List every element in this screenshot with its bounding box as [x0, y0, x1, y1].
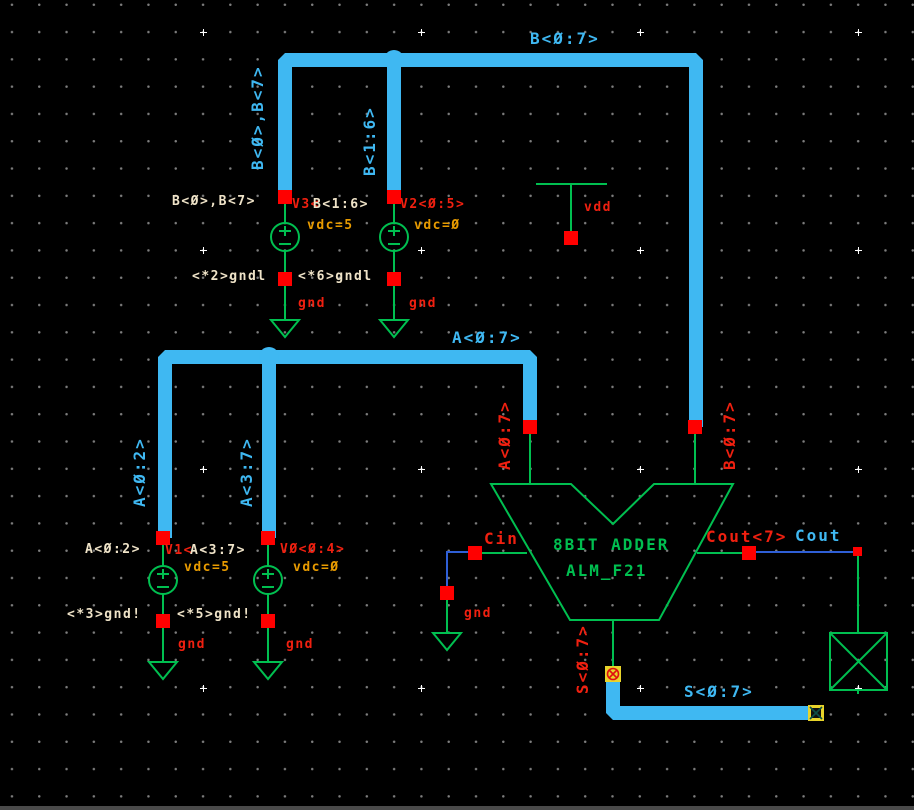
- vsource-v2[interactable]: [380, 223, 408, 251]
- v0-gnd-ref-label[interactable]: <*5>gnd!: [177, 608, 252, 621]
- bus-b-junction[interactable]: [384, 50, 404, 70]
- pin-v2-minus[interactable]: [387, 272, 401, 286]
- net-label-b-mid-rot[interactable]: B<1:6>: [362, 106, 378, 176]
- bus-a-junction[interactable]: [259, 347, 279, 367]
- net-label-b-left-rot[interactable]: B<Ø>,B<7>: [250, 65, 266, 170]
- pin-v2-plus[interactable]: [387, 190, 401, 204]
- adder-pin-b-label[interactable]: B<Ø:7>: [722, 400, 738, 470]
- gnd-label-v0: gnd: [286, 638, 314, 651]
- adder-pin-cin-label[interactable]: Cin: [484, 531, 519, 547]
- gnd-label-v3: gnd: [298, 297, 326, 310]
- v1-value-label[interactable]: vdc=5: [184, 561, 231, 574]
- net-label-s-bus[interactable]: S<Ø:7>: [684, 684, 754, 700]
- v2-net-label[interactable]: B<1:6>: [313, 198, 369, 211]
- v1-net-label[interactable]: A<Ø:2>: [85, 543, 141, 556]
- net-label-cout[interactable]: Cout: [795, 528, 842, 544]
- net-label-a-left-rot[interactable]: A<Ø:2>: [132, 437, 148, 507]
- pin-cin-gnd[interactable]: [440, 586, 454, 600]
- v0-net-label[interactable]: A<3:7>: [190, 544, 246, 557]
- gnd-label-cin: gnd: [464, 607, 492, 620]
- pin-vdd[interactable]: [564, 231, 578, 245]
- pin-v1-minus[interactable]: [156, 614, 170, 628]
- net-label-a-bus[interactable]: A<Ø:7>: [452, 330, 522, 346]
- vsource-v0[interactable]: [254, 566, 282, 594]
- v0-name-label[interactable]: VØ<Ø:4>: [280, 543, 345, 556]
- noconn-box-symbol[interactable]: [830, 633, 887, 690]
- gnd-label-v2: gnd: [409, 297, 437, 310]
- s-bus-end-marker[interactable]: [808, 705, 824, 721]
- pin-bus-a-stub[interactable]: [523, 420, 537, 434]
- v1-name-label[interactable]: V1<: [165, 544, 193, 557]
- v2-name-label[interactable]: V2<Ø:5>: [400, 198, 465, 211]
- v2-gnd-ref-label[interactable]: <*6>gndl: [298, 270, 373, 283]
- gnd-label-v1: gnd: [178, 638, 206, 651]
- v0-value-label[interactable]: vdc=Ø: [293, 561, 340, 574]
- vsource-v3[interactable]: [271, 223, 299, 251]
- adder-pin-s-label[interactable]: S<Ø:7>: [575, 624, 591, 694]
- window-edge: [0, 806, 914, 810]
- gnd-symbol-v2[interactable]: [380, 320, 408, 337]
- vdd-label: vdd: [584, 201, 612, 214]
- pin-v0-minus[interactable]: [261, 614, 275, 628]
- bus-a-wire[interactable]: [165, 357, 530, 538]
- adder-title: 8BIT ADDER: [553, 537, 669, 553]
- v1-gnd-ref-label[interactable]: <*3>gnd!: [67, 608, 142, 621]
- schematic-canvas: B<Ø:7> A<Ø:7> S<Ø:7> Cout B<Ø>,B<7> B<1:…: [0, 0, 914, 810]
- gnd-symbol-v0[interactable]: [254, 662, 282, 679]
- gnd-symbol-v1[interactable]: [149, 662, 177, 679]
- vsource-v1[interactable]: [149, 566, 177, 594]
- pin-bus-b-stub[interactable]: [688, 420, 702, 434]
- v3-net-label[interactable]: B<Ø>,B<7>: [172, 195, 256, 208]
- adder-pin-cout-label[interactable]: Cout<7>: [706, 529, 787, 545]
- pin-cin[interactable]: [468, 546, 482, 560]
- adder-subtitle: ALM_F21: [566, 563, 647, 579]
- adder-pin-a-label[interactable]: A<Ø:7>: [497, 400, 513, 470]
- net-label-b-bus[interactable]: B<Ø:7>: [530, 31, 600, 47]
- s-net-marker[interactable]: [605, 666, 621, 682]
- pin-cout[interactable]: [742, 546, 756, 560]
- bus-b-wire[interactable]: [285, 60, 696, 427]
- pin-v3-minus[interactable]: [278, 272, 292, 286]
- v3-gnd-ref-label[interactable]: <*2>gndl: [192, 270, 267, 283]
- pin-v0-plus[interactable]: [261, 531, 275, 545]
- v3-value-label[interactable]: vdc=5: [307, 219, 354, 232]
- pin-cout-corner[interactable]: [853, 547, 862, 556]
- v2-value-label[interactable]: vdc=Ø: [414, 219, 461, 232]
- pin-v3-plus[interactable]: [278, 190, 292, 204]
- net-label-a-mid-rot[interactable]: A<3:7>: [239, 437, 255, 507]
- gnd-symbol-v3[interactable]: [271, 320, 299, 337]
- cin-gnd-blue-wire[interactable]: [447, 552, 468, 589]
- gnd-symbol-cin[interactable]: [433, 633, 461, 650]
